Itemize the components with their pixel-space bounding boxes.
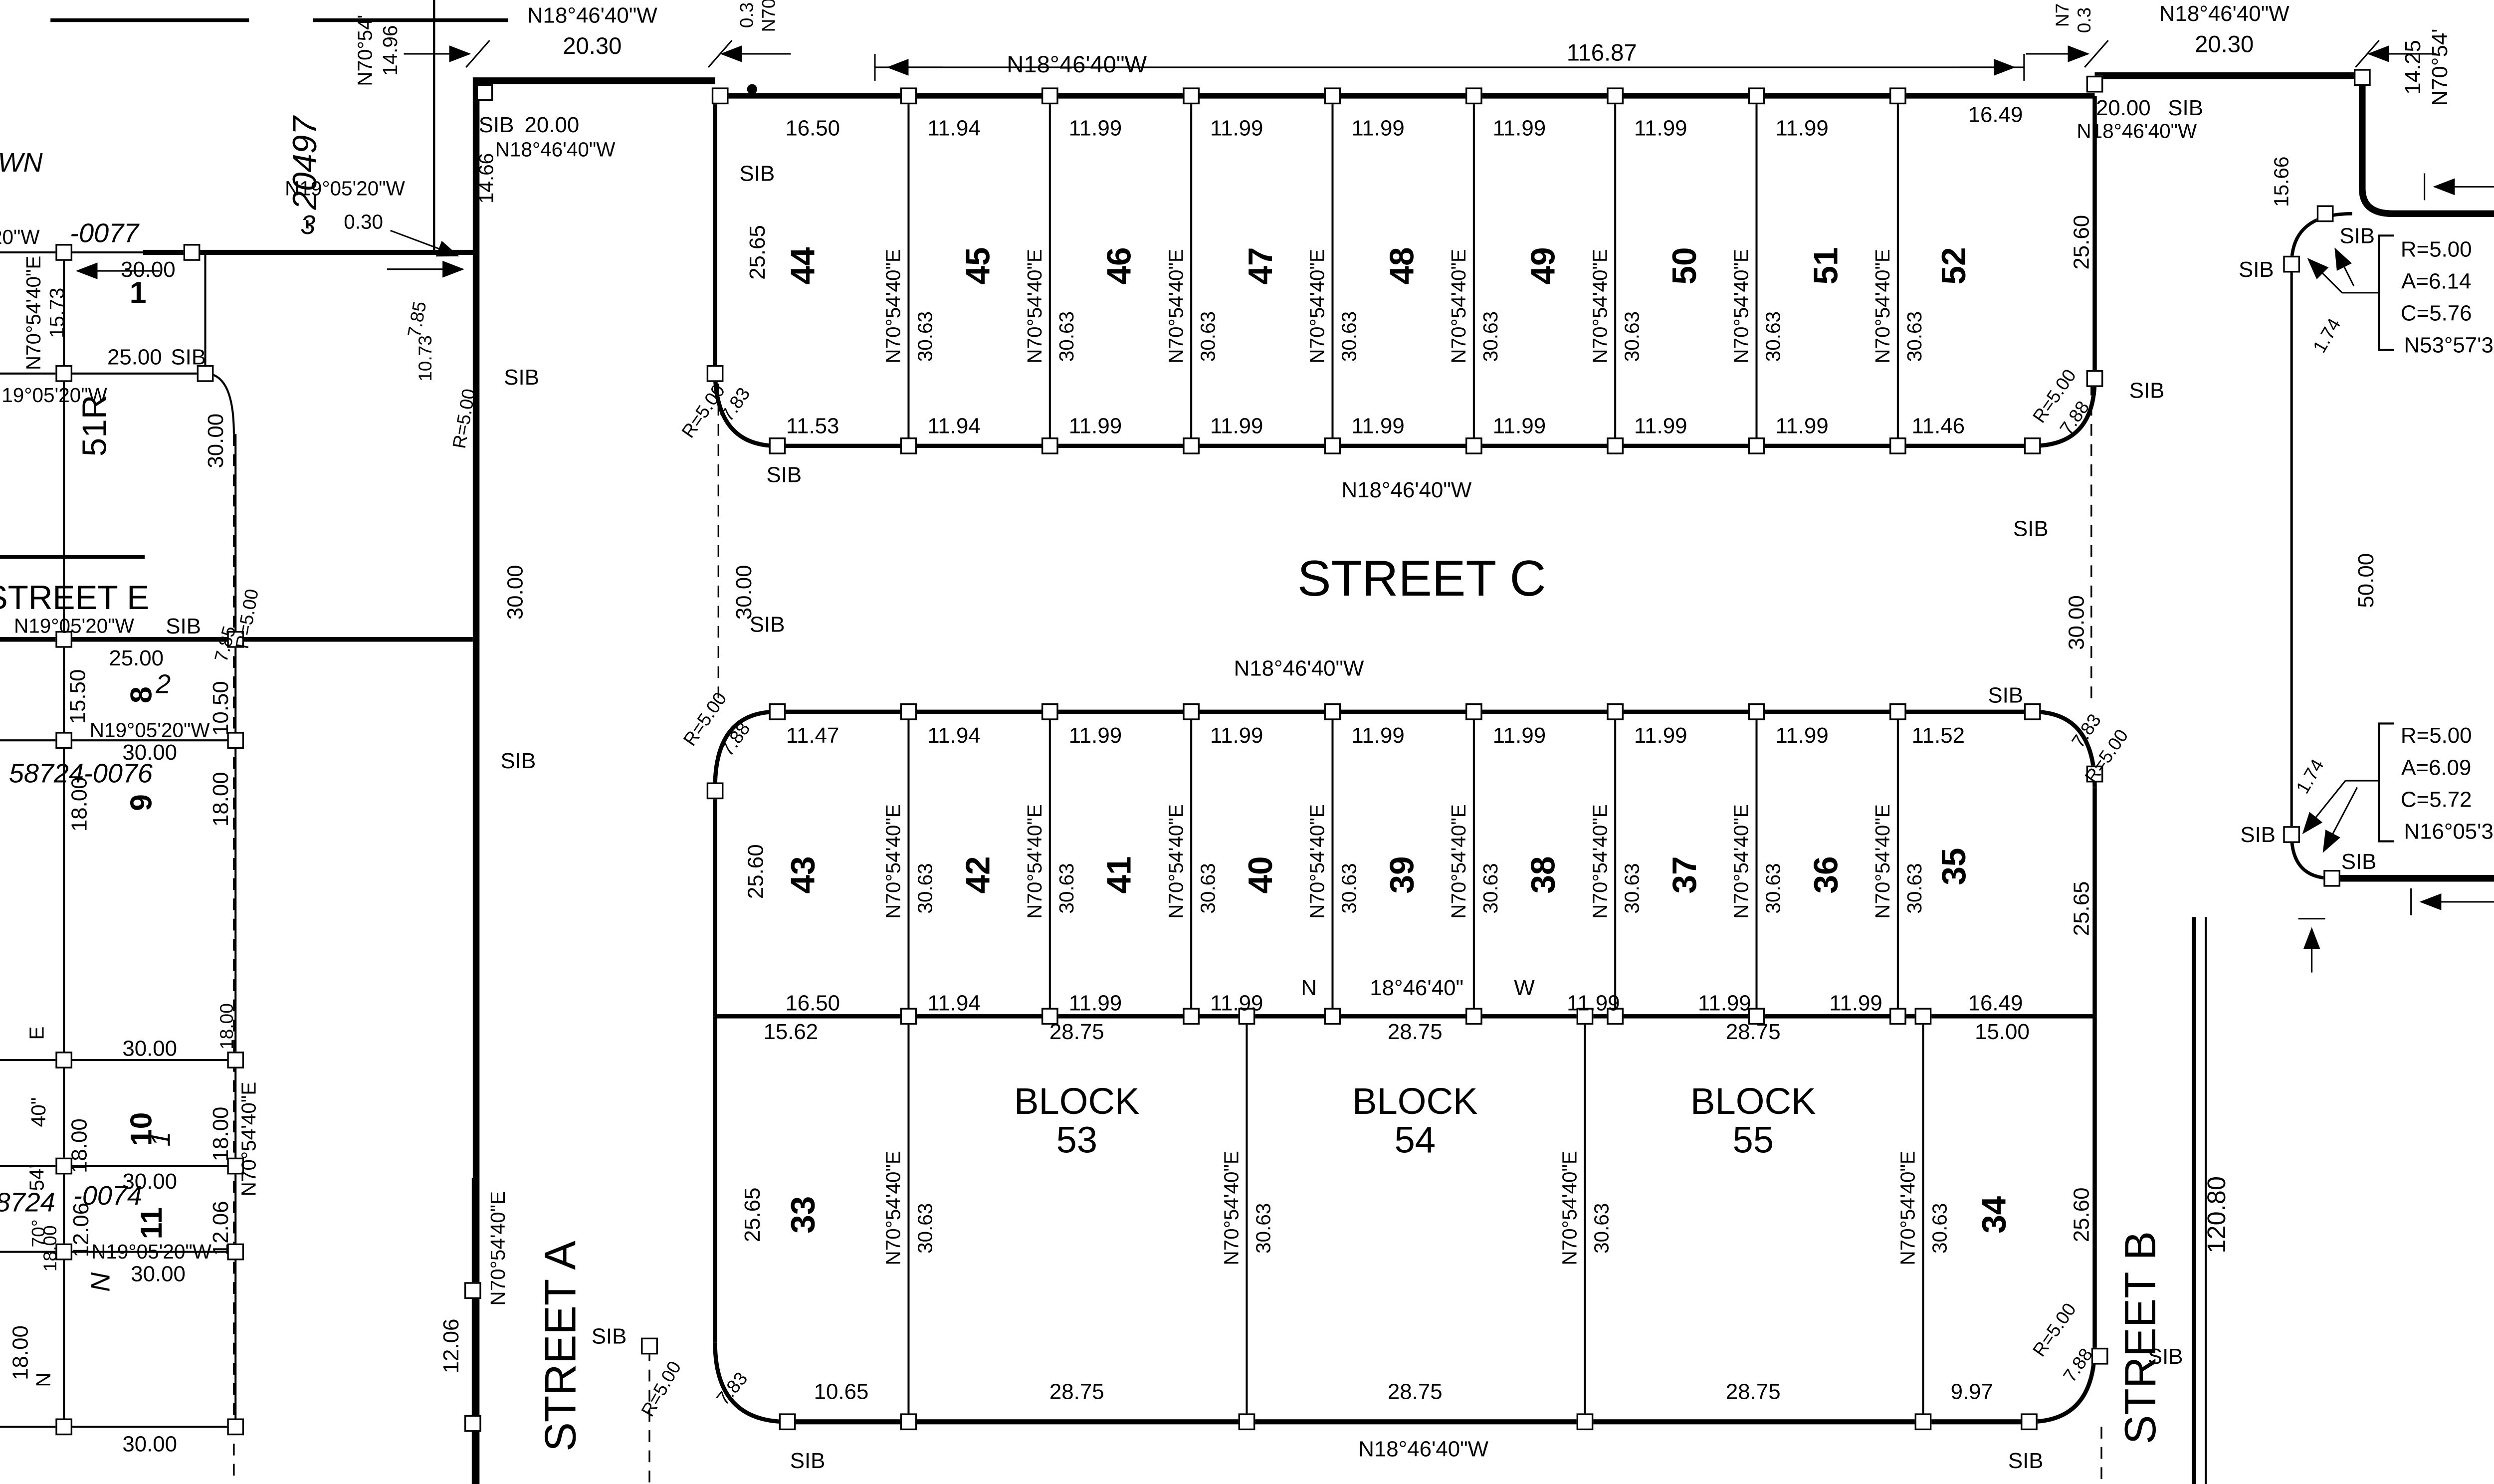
distance-label: 11.99 [1567,992,1620,1014]
distance-label: 30.63 [1198,311,1218,362]
monument-label: SIB [2008,1450,2044,1472]
bearing-label: N18°46'40"W [1341,479,1471,501]
distance-label: 11.99 [1069,724,1122,746]
monument-icon [769,703,786,720]
monument-icon [1889,703,1906,720]
block-bottom-lot-lines [908,1016,1923,1422]
distance-label: 50.00 [2355,553,2377,608]
distance-label: 18.00 [209,772,231,827]
distance-label: 20.30 [2195,32,2254,55]
lot-number: 40 [1245,856,1278,893]
bearing-label: N70°54'40"E [1898,1151,1918,1266]
monument-icon [707,365,724,382]
bearing-label: N70°54'40"E [883,1151,903,1266]
bearing-label: N70°54'40"E [883,804,903,919]
monument-label: SIB [1988,684,2023,706]
distance-label: 0.30 [344,212,383,232]
bearing-label: N70°54'40"E [1449,804,1468,919]
distance-label: 30.00 [131,1263,186,1285]
street-label: STREET C [1297,555,1546,606]
bearing-label: N70°54'40"E [1731,249,1751,364]
monument-icon [1183,437,1200,454]
distance-label: 30.63 [1253,1203,1273,1254]
monument-label: SIB [2013,517,2049,539]
block-label: BLOCK [1352,1083,1478,1120]
distance-label: 18.00 [9,1325,31,1380]
distance-label: 16.49 [1968,103,2023,125]
lot-number: 52 [1938,247,1972,284]
distance-label: 15.50 [66,669,88,724]
monument-label: SIB [171,346,206,368]
monument-icon [641,1338,658,1355]
street-label: STREET A [538,1241,582,1451]
distance-label: 20.00 [524,114,579,136]
distance-label: 25.00 [109,647,164,669]
bearing-label: N70°54' [355,15,375,86]
monument-label: SIB [2239,258,2274,280]
block-number: 54 [1394,1122,1436,1159]
monument-icon [2086,76,2103,93]
monument-icon [900,1008,917,1025]
lot-number: 51 [1810,247,1844,284]
bearing-label: N70°54'40"E [1590,249,1610,364]
distance-label: 11.99 [1351,415,1405,436]
distance-label: 16.50 [785,117,840,139]
distance-label: 30.63 [915,1203,935,1254]
lot-number: 50 [1669,247,1702,284]
bearing-label: N19°05'20"W [14,616,134,636]
lot-number: 3 [300,213,315,240]
bearing-label: N18°46'40"W [1358,1438,1488,1460]
distance-label: 28.75 [1726,1381,1781,1403]
bearing-label: N70°54'40"E [1025,804,1044,919]
distance-label: 11.99 [1634,117,1687,139]
bearing-label: N18°46'40"W [2159,2,2289,24]
monument-icon [1748,437,1765,454]
distance-label: 25.60 [2071,1187,2092,1242]
monument-icon [1748,703,1765,720]
monument-icon [1324,437,1341,454]
bearing-label: N70°54'40"E [1166,804,1186,919]
lot-number: 42 [962,856,996,893]
bearing-label: N70°54'40"E [239,1082,259,1197]
monument-icon [900,87,917,104]
lot-number: 51R [79,395,113,456]
monument-icon [1239,1413,1255,1430]
distance-label: 11.99 [1698,992,1751,1014]
distance-label: 30.63 [1198,863,1218,913]
distance-label: 11.94 [927,724,981,746]
monument-icon [2317,206,2334,222]
bearing-label: N70°54'40"E [488,1191,508,1306]
bearing-label: N18°46'40"W [1234,657,1364,679]
bearing-label: N70°54'40"E [1025,249,1044,364]
distance-label: 11.99 [1069,992,1122,1014]
distance-label: 30.63 [1339,863,1359,913]
bearing-label: N70°54'40"E [23,256,43,371]
curve-data: C=5.72 [2401,788,2472,810]
street-label: STREET E [0,582,149,616]
monument-label: SIB [479,114,514,136]
distance-label: 11.99 [1775,117,1829,139]
bearing-label: N19°05'20"W [91,1242,211,1262]
distance-label: 30.63 [1904,863,1924,913]
dashed-street-limits [234,384,2101,1484]
monument-label: SIB [2168,97,2203,119]
distance-label: 30.63 [1622,311,1642,362]
monument-icon [1183,703,1200,720]
monument-icon [2323,870,2340,887]
distance-label: 0.3 [2077,7,2095,33]
lot-number: 33 [788,1196,821,1234]
monument-icon [1324,703,1341,720]
distance-label: 12.06 [440,1319,462,1374]
monument-icon [476,84,493,101]
monument-icon [2021,1413,2038,1430]
distance-label: 25.60 [745,844,767,899]
monument-label: SIB [166,615,201,637]
curve-data: A=6.09 [2401,756,2471,778]
bearing-label: N18°46'40"W [2077,121,2197,141]
distance-label: 11.94 [927,415,981,436]
distance-label: 11.46 [1912,415,1965,436]
lot-number: 39 [1386,856,1420,893]
monument-icon [2283,826,2300,843]
bearing-label: N7 [2055,3,2074,27]
distance-label: 10.73 [418,335,436,382]
bearing-label: 54' [27,1165,47,1191]
distance-label: 120.80 [2205,1176,2230,1254]
curve-data: C=5.76 [2401,302,2472,324]
monument-icon [55,365,72,382]
plat-drawing: N18°46'40"W20.30N18°46'40"W116.87N18°46'… [0,0,2494,1484]
distance-label: 10.50 [209,681,231,736]
distance-label: 30.00 [504,565,526,620]
lot-number: 45 [962,247,996,284]
distance-label: 30.00 [122,1433,177,1455]
monument-icon [1465,1008,1482,1025]
bearing-label: N70°54'40"E [1307,804,1327,919]
distance-label: 9.97 [1951,1381,1993,1403]
bearing-label: N18°46'40"W [527,4,657,26]
distance-label: 25.65 [746,225,768,280]
monument-icon [1607,437,1624,454]
distance-label: 11.99 [1493,415,1546,436]
distance-label: 30.63 [1480,863,1500,913]
monument-icon [1465,703,1482,720]
monument-icon [2086,370,2103,387]
bearing-label: '20"W [0,227,40,247]
adjacent-plan-lines [50,0,508,252]
bearing-label: 40" [28,1097,48,1127]
distance-label: 20.00 [2096,97,2151,119]
distance-label: 30.00 [121,258,176,280]
lot-number: 47 [1245,247,1278,284]
bearing-label: N [33,1372,53,1387]
lot-number: 36 [1810,856,1844,893]
distance-label: 30.00 [2065,595,2087,650]
monument-icon [1889,1008,1906,1025]
bearing-label: N70°54'40"E [1590,804,1610,919]
lot-number: 35 [1938,848,1972,885]
distance-label: 11.99 [1634,415,1687,436]
monument-icon [769,437,786,454]
lot-number: 2 [156,673,171,700]
distance-label: 25.65 [741,1187,763,1242]
lot-number: 44 [788,247,821,284]
monument-label: SIB [501,750,536,772]
curve-data: N53°57'30 [2404,334,2494,356]
lot-number: 1 [130,278,147,308]
block-label: BLOCK [1690,1083,1816,1120]
monument-icon [1183,87,1200,104]
monument-icon [1183,1008,1200,1025]
monument-label: SIB [504,366,539,388]
distance-label: 18.00 [68,777,90,832]
monument-icon [1915,1413,1932,1430]
distance-label: 30.63 [1339,311,1359,362]
monument-label: SIB [740,163,775,185]
distance-label: 11.99 [1493,724,1546,746]
parcel-id: WN [0,152,42,179]
lot-number: 46 [1104,247,1137,284]
monument-icon [707,782,724,799]
monument-icon [1915,1008,1932,1025]
distance-label: 11.99 [1210,415,1263,436]
block-number: 55 [1732,1122,1774,1159]
bearing-label: N70°54'40"E [1560,1151,1580,1266]
monument-icon [1577,1413,1594,1430]
lot-number: 11 [136,1207,167,1239]
monument-label: SIB [2339,224,2375,246]
lot-number: 1 [150,1132,177,1147]
bearing-label: N19°05'20"W [90,720,210,740]
monument-icon [55,732,72,749]
distance-label: 30.63 [1930,1203,1950,1254]
monument-icon [227,1052,244,1068]
distance-label: 20.30 [563,33,622,57]
curve-data: N16°05'30 [2404,820,2494,842]
monument-icon [184,244,201,261]
bearing-label: N70°54'40"E [883,249,903,364]
monument-icon [2283,256,2300,273]
distance-label: 30.00 [205,414,226,468]
block-label: BLOCK [1014,1083,1140,1120]
distance-label: 30.63 [1622,863,1642,913]
monument-icon [1607,87,1624,104]
monument-icon [900,437,917,454]
lot-number: 37 [1669,856,1702,893]
monument-icon [1041,437,1058,454]
street-b-lines [2194,213,2352,1484]
monument-icon [1324,87,1341,104]
distance-label: 30.63 [1592,1203,1612,1254]
lot-number: 38 [1528,856,1561,893]
monument-icon [1889,87,1906,104]
distance-label: 11.53 [786,415,839,436]
monument-icon [779,1413,796,1430]
monument-icon [1889,437,1906,454]
distance-label: 30.00 [122,741,177,763]
distance-label: 30.63 [1763,311,1783,362]
distance-label: 28.75 [1388,1381,1443,1403]
distance-label: 25.65 [2071,881,2092,936]
monument-icon [1041,87,1058,104]
parcel-id: 8724 [0,1191,55,1218]
distance-label: 11.99 [1069,117,1122,139]
monument-label: SIB [750,613,785,635]
distance-label: 28.75 [1726,1021,1781,1043]
lot-number: 8 [126,686,157,703]
distance-label: 14.96 [380,25,400,76]
distance-label: 15.62 [763,1021,818,1043]
distance-label: 11.52 [1912,724,1965,746]
monument-icon [900,703,917,720]
distance-label: 25.00 [107,346,162,368]
bearing-label: W [1514,977,1534,999]
adjacent-lots-lines [0,252,473,1484]
bearing-label: N70 [761,0,780,32]
bearing-label: N70°54'40"E [1166,249,1186,364]
bearing-label: N70°54' [2429,28,2451,106]
distance-label: 12.06 [70,1203,92,1258]
monument-icon [1465,437,1482,454]
distance-label: 30.63 [915,311,935,362]
monument-label: SIB [2148,1345,2183,1367]
distance-label: 16.50 [785,992,840,1014]
distance-label: 25.60 [2071,215,2092,270]
monument-icon [712,87,729,104]
monument-icon [464,1415,481,1432]
distance-label: 14.25 [2402,40,2424,95]
monument-label: SIB [2341,850,2377,872]
monument-label: SIB [592,1325,627,1347]
bearing-label: N [1301,977,1317,999]
monument-icon [2024,703,2041,720]
monument-icon [1607,703,1624,720]
lot-number: 43 [788,856,821,893]
boundary-point-dot [747,84,757,94]
distance-label: 14.66 [476,153,496,204]
lot-number: 34 [1979,1196,2012,1234]
distance-label: 11.99 [1634,724,1687,746]
bearing-label: N19°05'20"W [285,179,405,199]
monument-label: SIB [766,463,802,485]
distance-label: 30.63 [1904,311,1924,362]
street-label: STREET B [2118,1231,2162,1444]
distance-label: 15.00 [1975,1021,2030,1043]
distance-label: 11.99 [1210,724,1263,746]
distance-label: 30.63 [1763,863,1783,913]
distance-label: 30.63 [1056,311,1076,362]
distance-label: 18.00 [209,1107,231,1162]
curve-data: R=5.00 [2401,238,2472,260]
dimension-arrows [77,54,2494,973]
bearing-label: N18°46'40"W [1007,52,1147,76]
distance-label: 28.75 [1049,1381,1104,1403]
distance-label: 11.99 [1210,117,1263,139]
distance-label: 11.99 [1775,415,1829,436]
bearing-label: N70°54'40"E [1222,1151,1242,1266]
distance-label: 11.99 [1210,992,1263,1014]
distance-label: 16.49 [1968,992,2023,1014]
distance-label: 30.63 [1056,863,1076,913]
bearing-label: N [89,1272,116,1292]
distance-label: 11.99 [1351,117,1405,139]
bearing-label: N70°54'40"E [1449,249,1468,364]
monument-icon [1748,87,1765,104]
distance-label: 11.99 [1351,724,1405,746]
distance-label: 15.73 [47,288,67,338]
monument-label: SIB [2129,380,2165,402]
bearing-label: N70°54'40"E [1731,804,1751,919]
plat-canvas: N18°46'40"W20.30N18°46'40"W116.87N18°46'… [0,0,2494,1484]
monument-icon [1041,703,1058,720]
monument-icon [1324,1008,1341,1025]
monument-icon [900,1413,917,1430]
curve-data: A=6.14 [2401,270,2471,292]
distance-label: 0.3 [739,2,758,28]
distance-label: 11.94 [927,117,981,139]
distance-label: 11.99 [1775,724,1829,746]
monument-icon [227,1419,244,1436]
distance-label: 28.75 [1049,1021,1104,1043]
distance-label: 11.94 [927,992,981,1014]
monument-icon [55,1419,72,1436]
distance-label: 30.63 [915,863,935,913]
bearing-label: N70°54'40"E [1307,249,1327,364]
monument-icon [2354,69,2371,86]
monument-icon [55,1052,72,1068]
bearing-label: N70°54'40"E [1872,804,1892,919]
bearing-label: E [27,1027,47,1040]
monument-icon [2024,437,2041,454]
distance-label: 116.87 [1567,40,1637,64]
distance-label: 11.99 [1829,992,1882,1014]
block-number: 53 [1056,1122,1097,1159]
distance-label: 15.66 [2272,157,2291,207]
bearing-label: 18°46'40" [1370,977,1463,999]
lot-number: 49 [1528,247,1561,284]
distance-label: 28.75 [1388,1021,1443,1043]
monument-icon [464,1282,481,1299]
distance-label: 11.47 [786,724,839,746]
distance-label: 30.63 [1480,311,1500,362]
monument-icon [1465,87,1482,104]
curve-data: R=5.00 [2401,724,2472,746]
distance-label: 10.65 [814,1381,869,1403]
bearing-label: N18°46'40"W [495,140,616,160]
distance-label: 12.06 [209,1201,231,1256]
monument-label: SIB [2240,824,2276,846]
distance-label: 18.00 [219,1003,238,1050]
bearing-label: N70°54'40"E [1872,249,1892,364]
distance-label: 11.99 [1069,415,1122,436]
lot-number: 9 [126,794,157,811]
distance-label: 11.99 [1493,117,1546,139]
distance-label: 18.00 [43,1225,61,1272]
distance-label: 18.00 [68,1118,90,1173]
lot-number: 41 [1104,856,1137,893]
monument-label: SIB [790,1450,826,1472]
parcel-id: -0077 [70,222,139,249]
distance-label: 30.00 [122,1038,177,1060]
lot-number: 48 [1386,247,1420,284]
